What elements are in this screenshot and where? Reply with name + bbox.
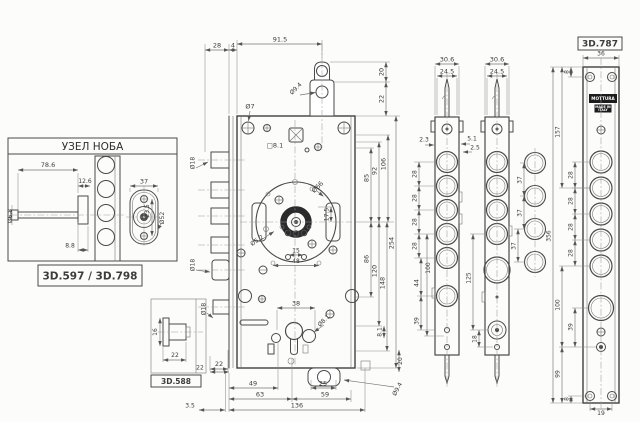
dim-br20: 20 bbox=[397, 357, 404, 365]
dim-fp-28-2: 28 bbox=[568, 197, 575, 205]
dim-b25: 25 bbox=[319, 380, 327, 388]
knob-mount-plate bbox=[78, 196, 88, 224]
dim-strip1-28-4: 28 bbox=[412, 242, 419, 250]
made-in-line2: ITALY bbox=[598, 108, 608, 112]
dim-r120: 120 bbox=[371, 265, 379, 277]
dim-strip1-28-1: 28 bbox=[412, 170, 419, 178]
dim-knob-shaft-dia: Ø6.8 bbox=[7, 209, 14, 223]
dim-r85: 85 bbox=[363, 174, 371, 182]
screw-mid-right bbox=[328, 245, 338, 255]
dim-knob-length: 78.6 bbox=[41, 161, 55, 169]
dim-fp-28-4: 28 bbox=[568, 249, 575, 257]
d588-code-label: 3D.588 bbox=[161, 377, 191, 386]
dim-fp-100: 100 bbox=[555, 299, 562, 311]
case-screw-tr bbox=[338, 122, 350, 134]
d588-frame bbox=[151, 299, 206, 373]
dim-strip1-2-3: 2.3 bbox=[419, 137, 429, 144]
lever-bar bbox=[240, 320, 268, 325]
dim-strip1-28-3: 28 bbox=[412, 218, 419, 226]
dim-top-91-5: 91.5 bbox=[273, 36, 287, 44]
lock-drawing-svg: УЗЕЛ НОБА 78.6 12.6 8.8 Ø6.8 37 23.5 Ø52… bbox=[0, 0, 640, 422]
dim-fp-356: 356 bbox=[546, 230, 553, 242]
dim-pump-offset: 17.5 bbox=[324, 208, 331, 222]
disc-screw-2 bbox=[307, 239, 317, 249]
case-screw-tl bbox=[242, 122, 254, 134]
dim-cc-15: 15 bbox=[292, 248, 300, 255]
dim-d588-length: 22 bbox=[171, 352, 179, 359]
dim-tab-20: 20 bbox=[378, 68, 386, 76]
knob-box-title: УЗЕЛ НОБА bbox=[62, 141, 124, 153]
cylinder-detail-3d588 bbox=[151, 299, 228, 387]
screw-low-left bbox=[258, 295, 266, 303]
dim-r106: 106 bbox=[380, 158, 388, 170]
dim-strip1-width2: 24.5 bbox=[440, 68, 454, 76]
dim-strip1-39: 39 bbox=[414, 317, 421, 325]
screw-small-tr bbox=[314, 143, 322, 151]
dim-r92: 92 bbox=[371, 167, 379, 175]
dim-key-hole-dia: Ø8.1 bbox=[316, 313, 331, 328]
dim-cc-48: 48 bbox=[292, 258, 300, 265]
dim-spindle-square: □8.1 bbox=[267, 142, 283, 150]
dim-strip1-28-2: 28 bbox=[412, 194, 419, 202]
dim-fp-28-3: 28 bbox=[568, 223, 575, 231]
dim-fp-36: 36 bbox=[597, 51, 605, 58]
deadbolt-strip-1 bbox=[414, 64, 472, 388]
dim-bolt-dia-lower: Ø18 bbox=[190, 259, 197, 272]
dim-fp-157: 157 bbox=[555, 126, 562, 138]
dim-b49: 49 bbox=[249, 380, 257, 388]
dim-strip1-2-5: 2.5 bbox=[470, 145, 480, 152]
dim-fp-99: 99 bbox=[555, 370, 562, 378]
dim-b59: 59 bbox=[321, 391, 329, 399]
dim-knob-offset: 12.6 bbox=[78, 178, 92, 185]
dim-strip2-width: 30.6 bbox=[490, 56, 504, 64]
dim-top-28: 28 bbox=[213, 42, 221, 50]
dim-knob-rose-dia: Ø52 bbox=[159, 212, 166, 225]
dim-btab-dia: Ø9.4 bbox=[391, 381, 404, 397]
dim-knob-plate-width: 37 bbox=[140, 178, 148, 186]
keyhole bbox=[286, 323, 303, 340]
disc-screw-1 bbox=[274, 195, 284, 205]
dim-roller-37-2: 37 bbox=[517, 209, 524, 217]
dim-tab-22: 22 bbox=[378, 95, 386, 103]
dim-top-4: 4 bbox=[231, 42, 235, 50]
faceplate-3d787 bbox=[550, 37, 622, 411]
dim-b3-5: 3.5 bbox=[185, 403, 195, 410]
technical-drawing-sheet: УЗЕЛ НОБА 78.6 12.6 8.8 Ø6.8 37 23.5 Ø52… bbox=[0, 0, 640, 422]
knob-assembly-detail bbox=[8, 138, 177, 286]
dim-fp-19: 19 bbox=[597, 410, 605, 417]
brand-label: MOTTURA bbox=[591, 96, 615, 101]
dim-fp-39: 39 bbox=[568, 323, 575, 331]
dim-fp-28-1: 28 bbox=[568, 171, 575, 179]
dim-strip1-width: 30.6 bbox=[440, 56, 454, 64]
dim-d588-height: 16 bbox=[152, 328, 159, 336]
dim-d588-dia: Ø18 bbox=[201, 303, 208, 316]
fix-hole-8-1 bbox=[303, 330, 316, 343]
faceplate-code-label: 3D.787 bbox=[582, 40, 618, 50]
dim-strip2-125: 125 bbox=[466, 272, 473, 284]
dim-strip1-100: 100 bbox=[425, 262, 432, 274]
dim-roller-37-3: 37 bbox=[511, 242, 518, 250]
dim-key-offset: 8.1 bbox=[377, 327, 384, 337]
dim-knob-screw-cc: 23.5 bbox=[144, 204, 151, 218]
dim-bottom-left-22: 22 bbox=[196, 365, 204, 372]
hole-left bbox=[239, 290, 252, 303]
dim-strip2-width2: 24.5 bbox=[490, 68, 504, 76]
hole-right bbox=[346, 290, 359, 303]
dim-r254: 254 bbox=[388, 237, 396, 249]
dim-r86: 86 bbox=[363, 255, 371, 263]
lock-body-view bbox=[196, 40, 400, 412]
dim-roller-37-1: 37 bbox=[517, 176, 524, 184]
dim-strip2-18: 18 bbox=[472, 335, 479, 343]
dim-fp-8-bottom: 8 bbox=[564, 397, 571, 401]
dim-b63: 63 bbox=[256, 391, 264, 399]
dim-fp-8-top: 8 bbox=[564, 70, 571, 74]
dim-dia7: Ø7 bbox=[245, 103, 254, 111]
dim-tab-hole-dia: Ø9.4 bbox=[288, 81, 303, 96]
dim-key-cc38: 38 bbox=[292, 300, 300, 308]
dim-strip1-44: 44 bbox=[414, 279, 421, 287]
dim-strip1-5-1: 5.1 bbox=[467, 136, 477, 143]
dim-bolt-dia-upper: Ø18 bbox=[190, 157, 197, 170]
knob-code-label: 3D.597 / 3D.798 bbox=[42, 271, 137, 283]
dim-knob-tail: 8.8 bbox=[65, 243, 75, 250]
screw-small-tl bbox=[263, 124, 271, 132]
dim-r148: 148 bbox=[379, 277, 387, 289]
dim-b136: 136 bbox=[291, 402, 303, 410]
dim-d588-offset: 22 bbox=[215, 360, 223, 368]
